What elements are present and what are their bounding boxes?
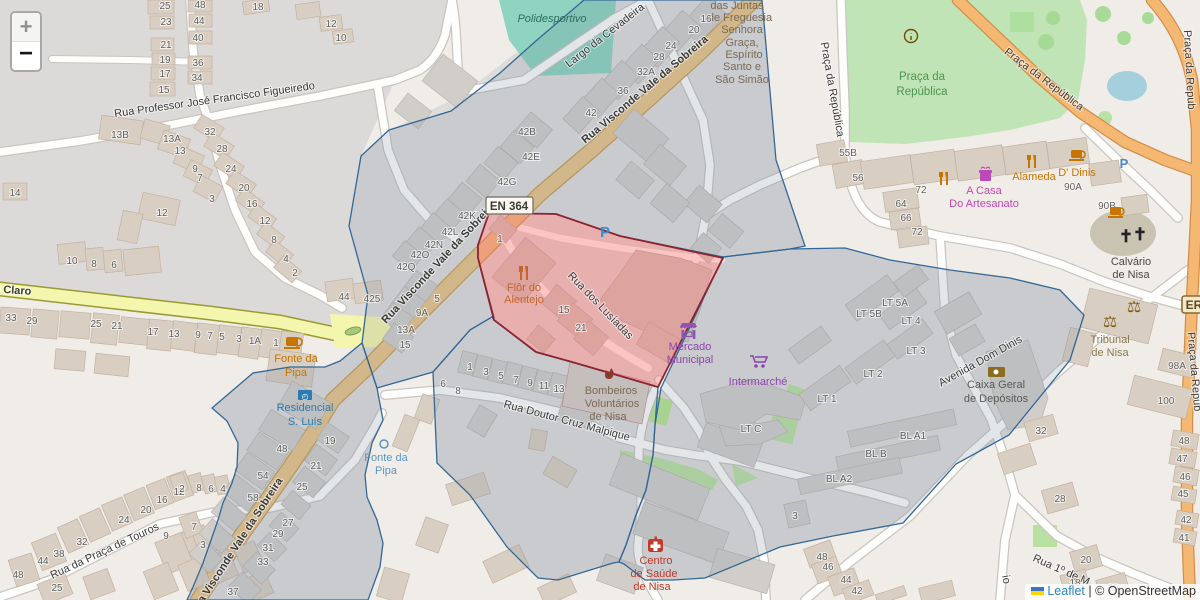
svg-text:Tribunal: Tribunal xyxy=(1090,334,1129,346)
svg-text:19: 19 xyxy=(324,436,336,447)
svg-text:de Saúde: de Saúde xyxy=(630,568,677,580)
svg-text:32: 32 xyxy=(76,537,88,548)
svg-text:4: 4 xyxy=(220,484,226,495)
svg-text:8: 8 xyxy=(91,259,97,270)
svg-text:16: 16 xyxy=(156,495,168,506)
svg-text:29: 29 xyxy=(26,316,38,327)
svg-text:425: 425 xyxy=(364,294,381,305)
svg-text:✝: ✝ xyxy=(1133,225,1147,244)
svg-text:República: República xyxy=(896,86,948,98)
svg-text:20: 20 xyxy=(140,505,152,516)
svg-text:de Freguesia: de Freguesia xyxy=(708,12,773,24)
svg-text:24: 24 xyxy=(225,164,237,175)
svg-text:44: 44 xyxy=(37,556,49,567)
svg-text:42O: 42O xyxy=(411,250,430,261)
svg-text:3: 3 xyxy=(200,540,206,551)
svg-text:10: 10 xyxy=(335,33,347,44)
svg-text:72: 72 xyxy=(911,227,923,238)
svg-text:D' Dinis: D' Dinis xyxy=(1058,167,1096,179)
svg-text:41: 41 xyxy=(1178,533,1190,544)
svg-text:17: 17 xyxy=(159,69,171,80)
svg-text:13A: 13A xyxy=(163,134,181,145)
svg-text:ER: ER xyxy=(1186,298,1200,312)
svg-text:54: 54 xyxy=(257,471,269,482)
svg-text:BL B: BL B xyxy=(865,449,887,460)
svg-text:48: 48 xyxy=(1178,436,1190,447)
svg-text:◴: ◴ xyxy=(302,392,309,401)
svg-text:36: 36 xyxy=(192,58,204,69)
svg-text:7: 7 xyxy=(207,331,213,342)
svg-text:16: 16 xyxy=(700,14,712,25)
svg-text:P: P xyxy=(1120,156,1129,171)
svg-text:27: 27 xyxy=(282,518,294,529)
svg-text:10: 10 xyxy=(66,256,78,267)
svg-text:21: 21 xyxy=(111,321,123,332)
svg-text:Bombeiros: Bombeiros xyxy=(585,385,638,397)
svg-text:90A: 90A xyxy=(1064,182,1082,193)
svg-text:EN 364: EN 364 xyxy=(490,201,529,213)
svg-text:45: 45 xyxy=(1177,489,1189,500)
svg-text:Voluntários: Voluntários xyxy=(585,398,640,410)
svg-text:46: 46 xyxy=(1179,472,1191,483)
svg-text:7: 7 xyxy=(197,173,203,184)
svg-text:BL A1: BL A1 xyxy=(900,431,927,442)
svg-text:Polidesportivo: Polidesportivo xyxy=(517,13,586,25)
svg-text:32: 32 xyxy=(204,127,216,138)
svg-text:15: 15 xyxy=(158,85,170,96)
svg-text:66: 66 xyxy=(900,213,912,224)
svg-text:12: 12 xyxy=(325,19,337,30)
svg-text:9A: 9A xyxy=(416,308,429,319)
svg-text:32: 32 xyxy=(1035,426,1047,437)
svg-text:BL A2: BL A2 xyxy=(826,474,853,485)
svg-text:25: 25 xyxy=(296,482,308,493)
svg-text:2: 2 xyxy=(292,268,298,279)
svg-text:Graça,: Graça, xyxy=(725,37,758,49)
svg-text:S. Luís: S. Luís xyxy=(288,416,323,428)
svg-text:14: 14 xyxy=(9,188,21,199)
svg-text:13: 13 xyxy=(174,146,186,157)
svg-text:13: 13 xyxy=(553,384,565,395)
svg-text:28: 28 xyxy=(216,144,228,155)
svg-text:de Nisa: de Nisa xyxy=(1091,347,1129,359)
svg-text:40: 40 xyxy=(192,33,204,44)
svg-text:8: 8 xyxy=(271,235,277,246)
svg-text:23: 23 xyxy=(160,17,172,28)
svg-text:LT 1: LT 1 xyxy=(817,394,837,405)
svg-text:1A: 1A xyxy=(249,336,262,347)
svg-text:São Simão: São Simão xyxy=(715,74,769,86)
svg-text:7: 7 xyxy=(191,522,197,533)
svg-text:1: 1 xyxy=(467,362,473,373)
svg-text:7: 7 xyxy=(513,375,519,386)
svg-text:72: 72 xyxy=(915,185,927,196)
svg-text:64: 64 xyxy=(895,199,907,210)
svg-text:Alameda: Alameda xyxy=(1012,171,1056,183)
svg-text:5: 5 xyxy=(219,332,225,343)
svg-text:44: 44 xyxy=(338,292,350,303)
svg-text:P: P xyxy=(600,224,610,241)
svg-text:37: 37 xyxy=(227,587,239,598)
svg-text:98A: 98A xyxy=(1168,361,1186,372)
svg-text:29: 29 xyxy=(272,529,284,540)
svg-text:36: 36 xyxy=(617,86,629,97)
svg-text:13B: 13B xyxy=(111,130,129,141)
svg-text:12: 12 xyxy=(259,216,271,227)
svg-text:1: 1 xyxy=(273,338,279,349)
svg-text:18: 18 xyxy=(252,2,264,13)
svg-text:Residencial: Residencial xyxy=(277,402,334,414)
svg-text:15: 15 xyxy=(558,305,570,316)
svg-text:13: 13 xyxy=(168,329,180,340)
svg-text:17: 17 xyxy=(147,327,159,338)
svg-text:Caixa Geral: Caixa Geral xyxy=(967,379,1025,391)
svg-text:de Nisa: de Nisa xyxy=(589,411,627,423)
svg-text:Calvário: Calvário xyxy=(1111,256,1151,268)
svg-text:42G: 42G xyxy=(498,177,517,188)
svg-text:21: 21 xyxy=(160,40,172,51)
svg-text:34: 34 xyxy=(191,73,203,84)
svg-text:Fonte da: Fonte da xyxy=(364,452,408,464)
svg-text:25: 25 xyxy=(90,319,102,330)
svg-text:LT 5A: LT 5A xyxy=(882,298,908,309)
svg-text:Pipa: Pipa xyxy=(285,367,308,379)
svg-text:LT 2: LT 2 xyxy=(863,369,883,380)
svg-text:Centro: Centro xyxy=(639,555,672,567)
svg-text:Santo e: Santo e xyxy=(723,61,761,73)
svg-text:42: 42 xyxy=(585,108,597,119)
svg-text:48: 48 xyxy=(276,444,288,455)
svg-text:47: 47 xyxy=(1176,454,1188,465)
svg-text:33: 33 xyxy=(5,313,17,324)
svg-text:Praça da: Praça da xyxy=(899,71,946,83)
svg-text:Alentejo: Alentejo xyxy=(504,294,544,306)
svg-text:LT 4: LT 4 xyxy=(901,316,921,327)
svg-text:42B: 42B xyxy=(518,127,536,138)
svg-text:21: 21 xyxy=(310,461,322,472)
svg-text:16: 16 xyxy=(246,199,258,210)
svg-text:15: 15 xyxy=(399,340,411,351)
svg-text:Fonte da: Fonte da xyxy=(274,353,318,365)
svg-text:Flôr do: Flôr do xyxy=(507,282,541,294)
svg-text:8: 8 xyxy=(455,386,461,397)
svg-text:38: 38 xyxy=(53,549,65,560)
svg-text:Municipal: Municipal xyxy=(667,354,713,366)
svg-text:3: 3 xyxy=(236,334,242,345)
svg-text:de Nisa: de Nisa xyxy=(633,581,671,593)
svg-text:58: 58 xyxy=(247,493,259,504)
svg-text:44: 44 xyxy=(840,575,852,586)
svg-text:Mercado: Mercado xyxy=(669,341,712,353)
svg-text:42K: 42K xyxy=(458,211,476,222)
svg-text:42: 42 xyxy=(1180,515,1192,526)
svg-text:de Depósitos: de Depósitos xyxy=(964,393,1029,405)
svg-text:42Q: 42Q xyxy=(397,262,416,273)
svg-text:Do Artesanato: Do Artesanato xyxy=(949,198,1019,210)
svg-text:28: 28 xyxy=(1054,494,1066,505)
svg-text:9: 9 xyxy=(195,330,201,341)
svg-text:20: 20 xyxy=(238,183,250,194)
svg-text:11: 11 xyxy=(539,381,550,392)
svg-text:3: 3 xyxy=(483,367,489,378)
svg-text:32A: 32A xyxy=(637,67,655,78)
svg-text:42L: 42L xyxy=(442,227,459,238)
svg-text:LT 5B: LT 5B xyxy=(856,309,882,320)
svg-text:de Nisa: de Nisa xyxy=(1112,269,1150,281)
svg-text:13A: 13A xyxy=(397,325,415,336)
svg-text:Espírito: Espírito xyxy=(725,49,762,61)
svg-text:12: 12 xyxy=(156,208,168,219)
svg-text:24: 24 xyxy=(665,41,677,52)
svg-text:46: 46 xyxy=(822,562,834,573)
svg-text:6: 6 xyxy=(208,484,214,495)
svg-text:5: 5 xyxy=(498,371,504,382)
svg-text:28: 28 xyxy=(653,52,665,63)
svg-text:48: 48 xyxy=(12,570,24,581)
svg-text:56: 56 xyxy=(852,173,864,184)
svg-text:2: 2 xyxy=(179,484,185,495)
svg-text:48: 48 xyxy=(194,0,206,11)
svg-text:55B: 55B xyxy=(839,148,857,159)
svg-text:42E: 42E xyxy=(522,152,540,163)
svg-text:Senhora: Senhora xyxy=(721,24,763,36)
svg-text:4: 4 xyxy=(283,254,289,265)
svg-text:LT 3: LT 3 xyxy=(906,346,926,357)
svg-text:A Casa: A Casa xyxy=(966,185,1002,197)
svg-text:⚖: ⚖ xyxy=(1127,299,1141,316)
svg-text:6: 6 xyxy=(111,260,117,271)
svg-text:5: 5 xyxy=(434,294,440,305)
svg-text:Intermarché: Intermarché xyxy=(729,376,788,388)
svg-text:LT C: LT C xyxy=(741,424,762,435)
svg-text:21: 21 xyxy=(575,323,587,334)
svg-text:31: 31 xyxy=(262,543,274,554)
svg-text:Pipa: Pipa xyxy=(375,465,398,477)
svg-text:6: 6 xyxy=(440,379,446,390)
svg-text:⚖: ⚖ xyxy=(1103,314,1117,331)
svg-text:3: 3 xyxy=(792,511,798,522)
svg-text:das Juntas: das Juntas xyxy=(710,0,764,12)
svg-text:25: 25 xyxy=(159,1,171,12)
svg-text:33: 33 xyxy=(257,557,269,568)
svg-text:✝: ✝ xyxy=(1119,227,1133,246)
svg-text:1: 1 xyxy=(497,234,503,245)
svg-text:19: 19 xyxy=(159,55,171,66)
svg-text:100: 100 xyxy=(1158,396,1175,407)
svg-text:42: 42 xyxy=(851,586,863,597)
svg-text:9: 9 xyxy=(163,531,169,542)
svg-text:8: 8 xyxy=(196,483,202,494)
svg-text:9: 9 xyxy=(527,378,533,389)
svg-text:24: 24 xyxy=(118,515,130,526)
svg-text:25: 25 xyxy=(51,583,63,594)
svg-text:20: 20 xyxy=(1080,555,1092,566)
svg-text:3: 3 xyxy=(209,194,215,205)
svg-text:20: 20 xyxy=(688,25,700,36)
svg-text:44: 44 xyxy=(193,16,205,27)
